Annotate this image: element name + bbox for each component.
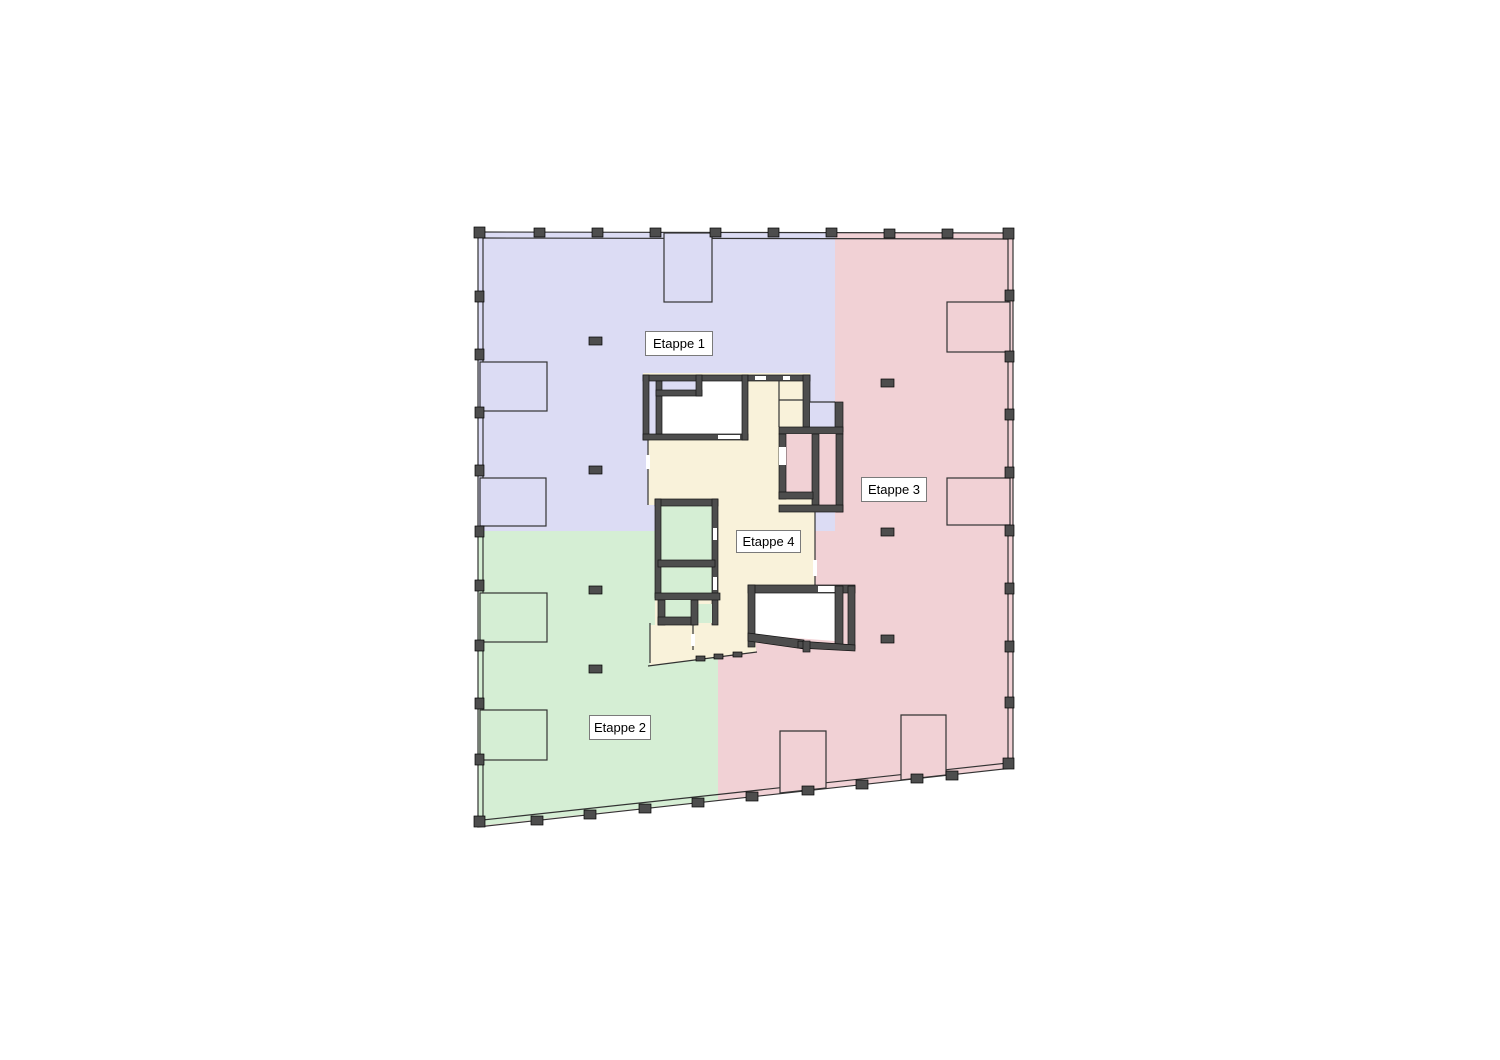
room-core-blue: [810, 402, 835, 428]
label-etappe-1: Etappe 1: [645, 331, 713, 356]
core-stairwell-block: [643, 375, 748, 440]
room-bottom-pink-2: [901, 715, 946, 780]
room-right-pink-1: [947, 302, 1010, 352]
room-top-blue: [664, 233, 712, 302]
label-etappe-3: Etappe 3: [861, 477, 927, 502]
room-core-pink-1: [786, 434, 812, 492]
label-etappe-4: Etappe 4: [736, 530, 801, 553]
core-bottom-block: [748, 585, 855, 652]
room-left-blue-2: [480, 478, 546, 526]
bottom-white-room: [755, 592, 835, 641]
room-core-pink-2: [819, 434, 836, 505]
room-right-pink-2: [947, 478, 1010, 525]
room-left-green-2: [480, 710, 547, 760]
room-core-green-1: [661, 506, 712, 560]
room-left-blue-1: [480, 362, 547, 411]
floor-plan-page: Etappe 1 Etappe 2 Etappe 3 Etappe 4: [0, 0, 1500, 1060]
room-bottom-pink-1: [780, 731, 826, 793]
label-etappe-2: Etappe 2: [589, 715, 651, 740]
room-left-green-1: [480, 593, 547, 642]
